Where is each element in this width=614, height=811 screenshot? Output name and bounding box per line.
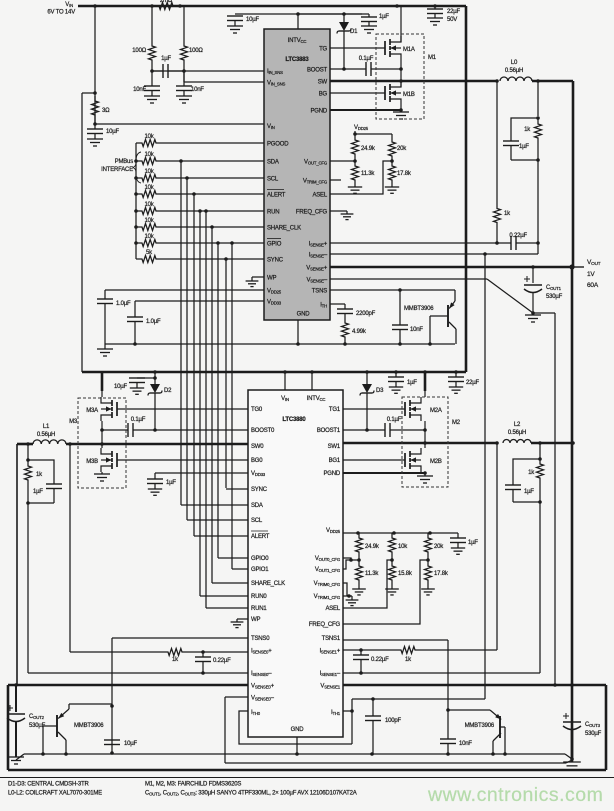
- svg-text:0.56µH: 0.56µH: [508, 430, 526, 436]
- svg-text:20k: 20k: [434, 544, 444, 550]
- svg-text:GPIO0: GPIO0: [251, 556, 269, 562]
- svg-text:2mΩ: 2mΩ: [160, 0, 173, 4]
- svg-text:INTVCC: INTVCC: [288, 38, 307, 44]
- svg-text:15.8k: 15.8k: [398, 571, 413, 577]
- svg-text:1µF: 1µF: [33, 489, 43, 495]
- svg-text:TSNS1: TSNS1: [322, 636, 341, 642]
- svg-text:2200pF: 2200pF: [356, 311, 376, 317]
- svg-text:LTC3880: LTC3880: [282, 417, 306, 423]
- svg-text:PGND: PGND: [310, 109, 327, 115]
- svg-text:MMBT3906: MMBT3906: [404, 306, 434, 312]
- svg-text:L1: L1: [43, 424, 50, 430]
- svg-text:VSENSE1: VSENSE1: [320, 684, 340, 690]
- svg-text:0.56µH: 0.56µH: [37, 432, 55, 438]
- svg-text:50V: 50V: [447, 17, 457, 23]
- svg-text:10k: 10k: [144, 152, 154, 158]
- svg-text:VSENSE+: VSENSE+: [306, 266, 327, 272]
- svg-text:530µF: 530µF: [546, 294, 563, 300]
- svg-text:VIN: VIN: [65, 2, 73, 8]
- svg-text:WP: WP: [267, 276, 276, 282]
- svg-text:22µF: 22µF: [447, 9, 461, 15]
- svg-text:FREQ_CFG: FREQ_CFG: [309, 622, 341, 628]
- svg-text:SDA: SDA: [267, 160, 279, 166]
- svg-text:VOUT1_CFG: VOUT1_CFG: [315, 567, 341, 573]
- svg-text:SDA: SDA: [251, 503, 263, 509]
- svg-text:VIN: VIN: [267, 124, 275, 130]
- svg-text:10k: 10k: [398, 544, 408, 550]
- svg-text:ISENSE+: ISENSE+: [309, 242, 328, 248]
- svg-text:VDD33: VDD33: [251, 471, 266, 477]
- svg-text:BOOST0: BOOST0: [251, 428, 275, 434]
- svg-text:0.22µF: 0.22µF: [371, 657, 389, 663]
- svg-text:BG0: BG0: [251, 458, 263, 464]
- svg-text:SCL: SCL: [251, 518, 263, 524]
- svg-text:GPIO: GPIO: [267, 242, 282, 248]
- svg-text:SHARE_CLK: SHARE_CLK: [251, 581, 285, 587]
- svg-text:ISENSE0–: ISENSE0–: [251, 671, 272, 677]
- svg-text:PGOOD: PGOOD: [267, 142, 289, 148]
- svg-text:10k: 10k: [144, 218, 154, 224]
- svg-text:ITH0: ITH0: [251, 710, 261, 716]
- svg-text:WP: WP: [251, 617, 260, 623]
- svg-text:10k: 10k: [144, 185, 154, 191]
- svg-text:SHARE_CLK: SHARE_CLK: [267, 226, 301, 232]
- svg-text:17.8k: 17.8k: [434, 571, 449, 577]
- svg-text:10nF: 10nF: [133, 87, 146, 93]
- svg-text:SCL: SCL: [267, 177, 279, 183]
- svg-text:3Ω: 3Ω: [102, 108, 110, 114]
- svg-text:VOUT0_CFG: VOUT0_CFG: [315, 556, 341, 562]
- svg-text:M3A: M3A: [86, 408, 98, 414]
- svg-text:10µF: 10µF: [124, 741, 138, 747]
- svg-text:VIN: VIN: [281, 396, 289, 402]
- svg-text:VTRIM0_CFG: VTRIM0_CFG: [314, 581, 341, 587]
- svg-text:1.0µF: 1.0µF: [116, 301, 131, 307]
- svg-text:ALERT: ALERT: [267, 193, 286, 199]
- svg-text:COUT2: COUT2: [29, 714, 45, 720]
- svg-text:VTRIM1_CFG: VTRIM1_CFG: [314, 594, 341, 600]
- svg-text:1V: 1V: [587, 271, 595, 278]
- svg-text:TG: TG: [319, 47, 327, 53]
- svg-text:L2: L2: [514, 422, 521, 428]
- svg-text:FREQ_CFG: FREQ_CFG: [296, 210, 328, 216]
- svg-text:BOOST1: BOOST1: [317, 428, 341, 434]
- svg-text:INTVCC: INTVCC: [307, 396, 326, 402]
- svg-text:24.9k: 24.9k: [361, 146, 376, 152]
- svg-text:10nF: 10nF: [191, 87, 204, 93]
- svg-text:PGND: PGND: [323, 471, 340, 477]
- svg-text:1µF: 1µF: [519, 144, 529, 150]
- svg-text:MMBT3906: MMBT3906: [465, 723, 495, 729]
- svg-text:SW1: SW1: [328, 444, 341, 450]
- svg-text:0.22µF: 0.22µF: [509, 233, 527, 239]
- svg-text:GND: GND: [291, 727, 305, 733]
- svg-text:10nF: 10nF: [410, 327, 423, 333]
- svg-text:10nF: 10nF: [459, 741, 472, 747]
- svg-text:10µF: 10µF: [114, 384, 128, 390]
- svg-text:60A: 60A: [587, 282, 599, 289]
- svg-text:BG: BG: [319, 92, 328, 98]
- svg-text:M1A: M1A: [403, 47, 415, 53]
- svg-text:L0: L0: [511, 60, 518, 66]
- svg-text:100pF: 100pF: [385, 718, 402, 724]
- svg-text:1µF: 1µF: [161, 56, 171, 62]
- svg-text:1µF: 1µF: [468, 540, 478, 546]
- svg-text:M1, M2, M3: FAIRCHILD FDMS3620: M1, M2, M3: FAIRCHILD FDMS3620S: [145, 782, 241, 788]
- svg-text:INTERFACE: INTERFACE: [101, 167, 133, 173]
- svg-text:ITH1: ITH1: [331, 710, 341, 716]
- svg-text:1µF: 1µF: [524, 489, 534, 495]
- svg-text:M2: M2: [452, 420, 461, 426]
- svg-text:IIN_SNS: IIN_SNS: [267, 69, 283, 75]
- svg-text:0.22µF: 0.22µF: [213, 658, 231, 664]
- svg-text:0.56µH: 0.56µH: [505, 68, 523, 74]
- svg-text:VSENSE0+: VSENSE0+: [251, 684, 275, 690]
- svg-text:1µF: 1µF: [166, 480, 176, 486]
- svg-text:BG1: BG1: [329, 458, 341, 464]
- svg-text:1.0µF: 1.0µF: [146, 319, 161, 325]
- svg-text:SYNC: SYNC: [267, 258, 284, 264]
- svg-text:6V TO 14V: 6V TO 14V: [47, 10, 75, 16]
- svg-text:VOUT_CFG: VOUT_CFG: [304, 160, 328, 166]
- svg-text:TSNS: TSNS: [312, 289, 327, 295]
- svg-text:M3B: M3B: [86, 459, 98, 465]
- svg-text:530µF: 530µF: [585, 731, 602, 737]
- svg-text:ITH: ITH: [320, 303, 327, 309]
- svg-text:VSENSE0–: VSENSE0–: [251, 696, 275, 702]
- svg-text:D3: D3: [376, 388, 384, 394]
- svg-text:BOOST: BOOST: [307, 68, 328, 74]
- svg-text:SW0: SW0: [251, 444, 264, 450]
- svg-text:4.99k: 4.99k: [352, 329, 367, 335]
- svg-text:10k: 10k: [144, 134, 154, 140]
- svg-text:100Ω: 100Ω: [189, 48, 203, 54]
- svg-text:TG0: TG0: [251, 407, 263, 413]
- svg-text:M3: M3: [69, 419, 78, 425]
- svg-text:22µF: 22µF: [466, 380, 480, 386]
- svg-text:VDD25: VDD25: [267, 289, 282, 295]
- svg-text:SYNC: SYNC: [251, 487, 268, 493]
- svg-text:GND: GND: [297, 312, 311, 318]
- svg-text:1µF: 1µF: [379, 14, 389, 20]
- svg-text:RUN1: RUN1: [251, 606, 267, 612]
- svg-text:SW: SW: [318, 80, 328, 86]
- svg-text:ISENSE0+: ISENSE0+: [251, 649, 272, 655]
- svg-text:ALERT: ALERT: [251, 534, 270, 540]
- svg-text:D2: D2: [164, 388, 172, 394]
- svg-text:RUN0: RUN0: [251, 594, 267, 600]
- svg-text:M1B: M1B: [403, 92, 415, 98]
- svg-text:100Ω: 100Ω: [132, 48, 146, 54]
- svg-text:M1: M1: [428, 55, 437, 61]
- svg-text:D1-D3: CENTRAL CMDSH-3TR: D1-D3: CENTRAL CMDSH-3TR: [8, 782, 90, 788]
- svg-text:ISENSE1–: ISENSE1–: [320, 671, 341, 677]
- svg-text:10k: 10k: [144, 234, 154, 240]
- svg-text:M2B: M2B: [430, 459, 442, 465]
- svg-text:LTC3883: LTC3883: [285, 57, 309, 63]
- svg-text:VSENSE–: VSENSE–: [306, 278, 327, 284]
- svg-text:10µF: 10µF: [106, 129, 120, 135]
- svg-text:VDD25: VDD25: [354, 125, 369, 131]
- svg-text:VIN_SNS: VIN_SNS: [267, 81, 285, 87]
- svg-text:VDD25: VDD25: [326, 528, 341, 534]
- svg-text:D1: D1: [350, 29, 358, 35]
- svg-text:MMBT3906: MMBT3906: [74, 723, 104, 729]
- svg-text:COUT1: COUT1: [546, 285, 562, 291]
- svg-text:TSNS0: TSNS0: [251, 636, 270, 642]
- svg-text:ISENSE–: ISENSE–: [309, 253, 328, 259]
- svg-text:20k: 20k: [397, 146, 407, 152]
- svg-text:VDD33: VDD33: [267, 300, 282, 306]
- svg-text:0.1µF: 0.1µF: [387, 417, 402, 423]
- svg-text:17.8k: 17.8k: [397, 171, 412, 177]
- svg-text:0.1µF: 0.1µF: [359, 56, 374, 62]
- svg-text:COUT3: COUT3: [585, 722, 601, 728]
- svg-text:L0-L2: COILCRAFT XAL7070-301ME: L0-L2: COILCRAFT XAL7070-301ME: [8, 791, 102, 797]
- svg-text:ISENSE1+: ISENSE1+: [319, 649, 340, 655]
- svg-text:VTRIM_CFG: VTRIM_CFG: [303, 179, 328, 185]
- svg-text:GPIO1: GPIO1: [251, 567, 269, 573]
- svg-text:M2A: M2A: [430, 408, 442, 414]
- svg-text:PMBus: PMBus: [115, 159, 134, 165]
- svg-text:0.1µF: 0.1µF: [131, 417, 146, 423]
- svg-text:ASEL: ASEL: [312, 193, 327, 199]
- svg-text:ASEL: ASEL: [325, 606, 340, 612]
- svg-text:10k: 10k: [144, 169, 154, 175]
- svg-text:24.9k: 24.9k: [365, 544, 380, 550]
- svg-text:RUN: RUN: [267, 210, 279, 216]
- svg-text:10µF: 10µF: [246, 17, 260, 23]
- svg-text:1µF: 1µF: [407, 380, 417, 386]
- svg-text:COUT1, COUT2, COUT3: 330µH SAN: COUT1, COUT2, COUT3: 330µH SANYO 4TPF330…: [145, 791, 357, 797]
- svg-text:TG1: TG1: [329, 407, 341, 413]
- svg-text:11.3k: 11.3k: [365, 571, 379, 577]
- svg-text:10k: 10k: [144, 202, 154, 208]
- svg-text:11.3k: 11.3k: [361, 171, 375, 177]
- svg-text:www.cntronics.com: www.cntronics.com: [427, 784, 603, 806]
